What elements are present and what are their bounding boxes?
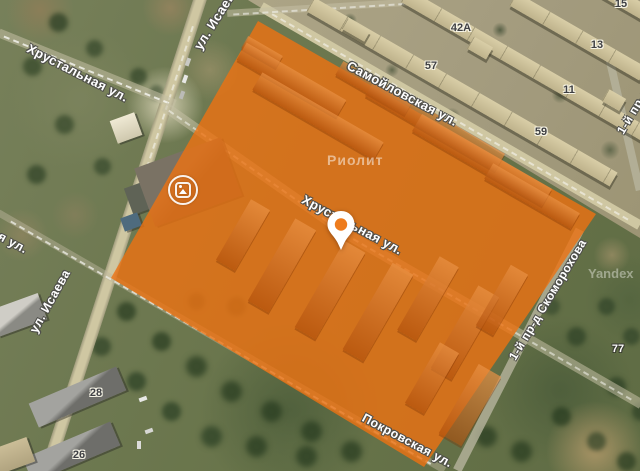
- house-number: 77: [612, 343, 624, 355]
- house-number: 26: [73, 449, 85, 461]
- house-number: 59: [535, 126, 547, 138]
- map-pin-icon[interactable]: [324, 209, 358, 255]
- panorama-icon[interactable]: [168, 175, 198, 205]
- house-number: 11: [563, 84, 575, 96]
- house-number: 42А: [451, 22, 471, 34]
- poi-label: Риолит: [327, 152, 384, 168]
- house-number: 57: [425, 60, 437, 72]
- panorama-icon-dot: [179, 185, 182, 188]
- yandex-watermark: Yandex: [588, 266, 634, 281]
- house-number: 15: [615, 0, 627, 10]
- tree-cover: [0, 0, 13, 13]
- house-number: 13: [591, 39, 603, 51]
- satellite-map-canvas[interactable]: Хрустальная ул. ул. Исаева Самойловская …: [0, 0, 640, 471]
- car: [137, 441, 141, 449]
- panorama-icon-triangle: [179, 189, 187, 194]
- house-number: 28: [90, 387, 102, 399]
